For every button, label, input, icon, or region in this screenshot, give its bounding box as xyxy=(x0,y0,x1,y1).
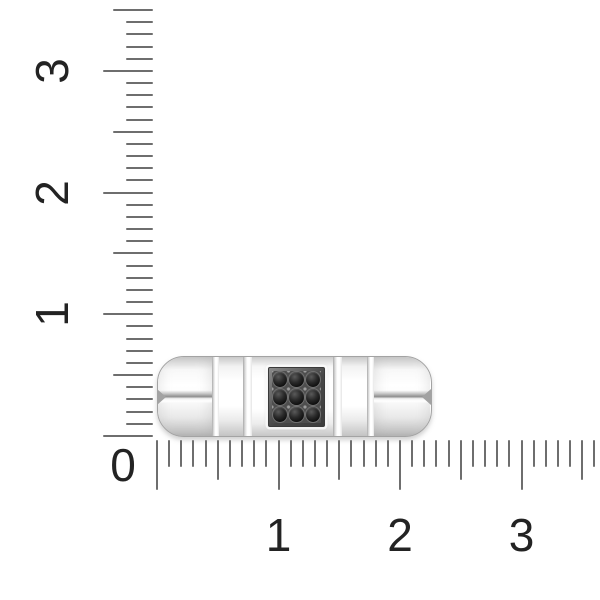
vertical-ruler-tick xyxy=(126,94,153,96)
horizontal-ruler-tick xyxy=(411,440,413,467)
vertical-ruler-label-2: 2 xyxy=(29,180,75,206)
horizontal-ruler-tick xyxy=(423,440,425,467)
horizontal-ruler-tick xyxy=(375,440,377,467)
vertical-ruler-tick xyxy=(126,106,153,108)
vertical-ruler-tick xyxy=(126,277,153,279)
horizontal-ruler-tick xyxy=(241,440,243,467)
stone-bed xyxy=(272,371,321,423)
vertical-ruler-tick xyxy=(103,435,153,437)
horizontal-ruler-tick xyxy=(363,440,365,467)
vertical-ruler-tick xyxy=(126,82,153,84)
vertical-ruler-tick xyxy=(126,33,153,35)
vertical-ruler-tick xyxy=(126,179,153,181)
product-photo-canvas: 123 123 0 xyxy=(0,0,600,600)
horizontal-ruler-tick xyxy=(557,440,559,467)
horizontal-ruler-tick xyxy=(229,440,231,467)
ring-left-end-segment xyxy=(158,357,212,436)
horizontal-ruler-tick xyxy=(278,440,280,490)
horizontal-ruler-tick xyxy=(290,440,292,467)
vertical-ruler-tick xyxy=(126,155,153,157)
horizontal-ruler-tick xyxy=(205,440,207,467)
ring-right-end-segment xyxy=(374,357,430,436)
horizontal-ruler-tick xyxy=(302,440,304,467)
horizontal-ruler-tick xyxy=(350,440,352,467)
horizontal-ruler-tick xyxy=(156,440,158,490)
horizontal-ruler-label-1: 1 xyxy=(266,512,292,558)
vertical-ruler-tick xyxy=(113,374,153,376)
horizontal-ruler-tick xyxy=(593,440,595,467)
vertical-ruler-tick xyxy=(103,70,153,72)
horizontal-ruler-tick xyxy=(338,440,340,480)
horizontal-ruler-label-3: 3 xyxy=(509,512,535,558)
vertical-ruler-tick xyxy=(103,313,153,315)
black-stone xyxy=(289,407,303,422)
ring-left-bar-segment xyxy=(219,357,243,436)
black-stone xyxy=(289,372,303,387)
horizontal-ruler-tick xyxy=(192,440,194,467)
horizontal-ruler-tick xyxy=(533,440,535,467)
vertical-ruler-tick xyxy=(113,131,153,133)
ring xyxy=(157,356,432,437)
black-stone xyxy=(273,372,287,387)
horizontal-ruler-tick xyxy=(496,440,498,467)
right-edge-notch xyxy=(422,389,431,405)
vertical-groove xyxy=(212,357,219,436)
ruler-zero-label: 0 xyxy=(110,442,136,488)
vertical-ruler-tick xyxy=(126,289,153,291)
horizontal-ruler-tick xyxy=(326,440,328,467)
vertical-ruler-label-3: 3 xyxy=(29,58,75,84)
horizontal-ruler-tick xyxy=(448,440,450,467)
horizontal-ruler-tick xyxy=(168,440,170,467)
vertical-ruler-tick xyxy=(113,252,153,254)
black-stone xyxy=(289,389,303,404)
black-stone xyxy=(306,389,320,404)
horizontal-ruler-tick xyxy=(569,440,571,467)
vertical-groove xyxy=(333,357,342,436)
vertical-ruler-tick xyxy=(126,216,153,218)
horizontal-ruler-tick xyxy=(460,440,462,480)
horizontal-ruler-tick xyxy=(581,440,583,480)
horizontal-ruler-tick xyxy=(265,440,267,467)
vertical-ruler-tick xyxy=(126,119,153,121)
horizontal-ruler-tick xyxy=(484,440,486,467)
vertical-ruler-tick xyxy=(126,21,153,23)
vertical-ruler-tick xyxy=(126,386,153,388)
vertical-ruler-tick xyxy=(126,167,153,169)
vertical-ruler-tick xyxy=(126,338,153,340)
vertical-ruler-label-1: 1 xyxy=(29,302,75,328)
vertical-ruler-tick xyxy=(126,46,153,48)
black-stone xyxy=(273,389,287,404)
vertical-ruler-tick xyxy=(126,265,153,267)
vertical-ruler-tick xyxy=(126,325,153,327)
horizontal-ruler-tick xyxy=(521,440,523,490)
vertical-ruler-tick xyxy=(126,204,153,206)
horizontal-ruler-tick xyxy=(472,440,474,467)
horizontal-ruler-label-2: 2 xyxy=(387,512,413,558)
horizontal-ruler-tick xyxy=(387,440,389,467)
horizontal-ruler-tick xyxy=(253,440,255,467)
black-stone xyxy=(306,372,320,387)
vertical-ruler-tick xyxy=(126,362,153,364)
horizontal-ruler-tick xyxy=(435,440,437,467)
vertical-ruler-tick xyxy=(113,9,153,11)
horizontal-ruler-tick xyxy=(180,440,182,467)
horizontal-ruler-tick xyxy=(217,440,219,480)
vertical-ruler-tick xyxy=(126,398,153,400)
horizontal-ruler-tick xyxy=(399,440,401,490)
black-stone xyxy=(306,407,320,422)
ring-right-bar-segment xyxy=(342,357,367,436)
vertical-ruler-tick xyxy=(126,350,153,352)
vertical-ruler-tick xyxy=(126,411,153,413)
vertical-ruler-tick xyxy=(126,58,153,60)
horizontal-ruler-tick xyxy=(545,440,547,467)
vertical-ruler-tick xyxy=(103,192,153,194)
horizontal-ruler-tick xyxy=(314,440,316,467)
vertical-groove xyxy=(243,357,252,436)
vertical-ruler-tick xyxy=(126,228,153,230)
left-horizontal-groove xyxy=(158,390,212,403)
black-stone xyxy=(273,407,287,422)
horizontal-ruler-tick xyxy=(508,440,510,467)
vertical-ruler-tick xyxy=(126,240,153,242)
pave-plate xyxy=(268,367,325,427)
vertical-groove xyxy=(367,357,374,436)
vertical-ruler-tick xyxy=(126,301,153,303)
left-edge-notch xyxy=(157,389,166,405)
vertical-ruler-tick xyxy=(126,423,153,425)
vertical-ruler-tick xyxy=(126,143,153,145)
